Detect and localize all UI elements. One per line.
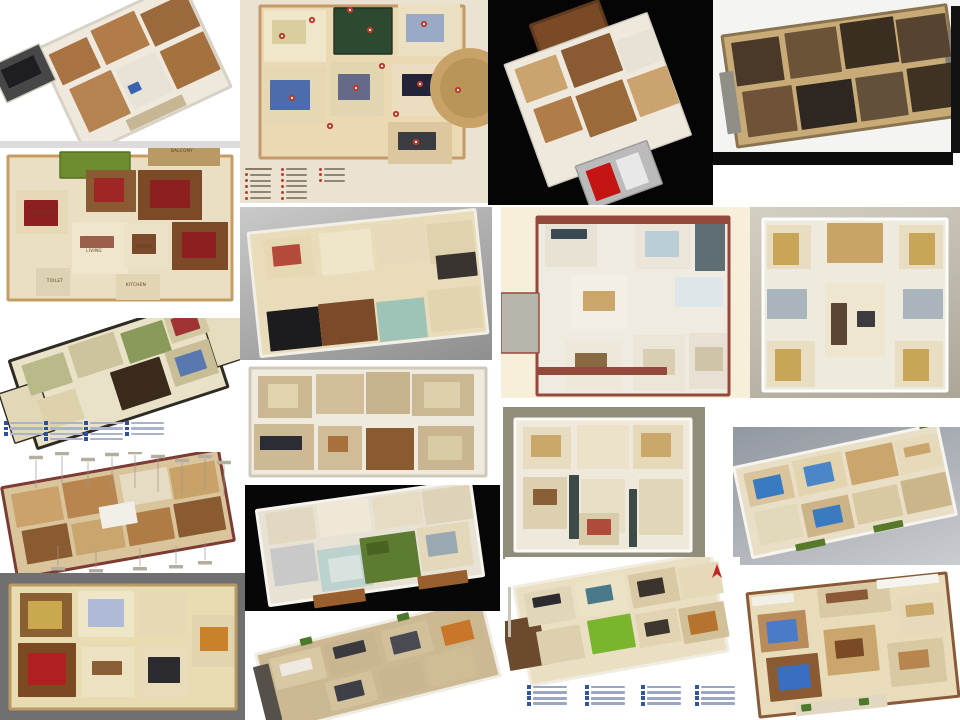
floor-plan-brown-blue-render	[735, 565, 960, 720]
floor-plan-gray-bg-iso	[240, 207, 492, 360]
callout-label	[198, 561, 212, 565]
floor-plan-maroon-beige	[501, 207, 750, 398]
callout-label	[198, 455, 212, 459]
callout-label	[81, 458, 95, 462]
floor-plan-olive-bg-glass	[503, 407, 705, 559]
floor-plan-black-bg-cars-render	[488, 0, 713, 205]
floor-plan-olive-bg-glass-render	[503, 407, 705, 559]
floor-plan-callouts	[0, 452, 240, 574]
floor-plan-numbered-legend-render	[240, 0, 488, 203]
floor-plan-dark-gray-warm	[0, 573, 245, 720]
floor-plan-dark-luxury-render	[713, 0, 960, 152]
floor-plan-four-bedrooms-render	[750, 207, 960, 398]
callout-label	[169, 565, 183, 569]
floor-plan-blue-beds-long-render	[733, 427, 960, 565]
tile-detail	[508, 587, 511, 637]
floor-plan-dark-gray-warm-render	[0, 573, 245, 720]
floor-plan-numbered-legend	[240, 0, 488, 203]
room-label: TOILET	[46, 278, 64, 283]
floor-plan-room-labels-render: LIVINGDININGKITCHENTOILETBALCONYBEDROOM	[0, 148, 240, 316]
room-label: BALCONY	[171, 148, 193, 153]
floor-plan-blue-legend-render	[0, 318, 240, 452]
floor-plan-four-bedrooms	[750, 207, 960, 398]
callout-label	[151, 455, 165, 459]
floor-plan-blue-beds-long	[733, 427, 960, 565]
callout-label	[55, 452, 69, 455]
floor-plan-white-bg-garage	[0, 0, 240, 141]
room-label: LIVING	[86, 248, 102, 253]
floor-plan-diagonal-tan	[252, 611, 505, 720]
floor-plan-maroon-beige-render	[501, 207, 750, 398]
floor-plan-tan-carpet-render	[242, 362, 495, 484]
callout-label	[51, 567, 65, 571]
floor-plan-black-bg-cars	[488, 0, 713, 205]
floor-plan-courtyard-black-bg	[245, 485, 500, 611]
floor-plan-diagonal-tan-render	[252, 611, 505, 720]
callout-label	[89, 569, 103, 573]
floor-plan-courtyard-black-bg-render	[245, 485, 500, 611]
callout-label	[105, 453, 119, 457]
floor-plan-room-labels: LIVINGDININGKITCHENTOILETBALCONYBEDROOM	[0, 148, 240, 316]
room-label: DINING	[135, 244, 152, 249]
black-bar-under-top-right	[713, 152, 953, 165]
callout-label	[29, 456, 43, 460]
floor-plan-dark-luxury	[713, 0, 960, 152]
black-edge-right	[951, 6, 960, 153]
room-label: KITCHEN	[126, 282, 146, 287]
callout-label	[128, 452, 142, 454]
callout-label	[133, 567, 147, 571]
floor-plan-collage: LIVINGDININGKITCHENTOILETBALCONYBEDROOM	[0, 0, 960, 720]
floor-plan-callouts-render	[0, 452, 240, 574]
floor-plan-tan-carpet	[242, 362, 495, 484]
floor-plan-gray-bg-iso-render	[240, 207, 492, 360]
floor-plan-lawn-legend	[505, 557, 740, 720]
floor-plan-brown-blue	[735, 565, 960, 720]
callout-label	[175, 459, 189, 463]
room-label: BEDROOM	[32, 210, 56, 215]
floor-plan-white-bg-garage-render	[0, 0, 240, 141]
floor-plan-blue-legend	[0, 318, 240, 452]
callout-label	[217, 461, 231, 465]
tile-divider-gray	[0, 141, 240, 148]
floor-plan-lawn-legend-render	[505, 557, 740, 720]
